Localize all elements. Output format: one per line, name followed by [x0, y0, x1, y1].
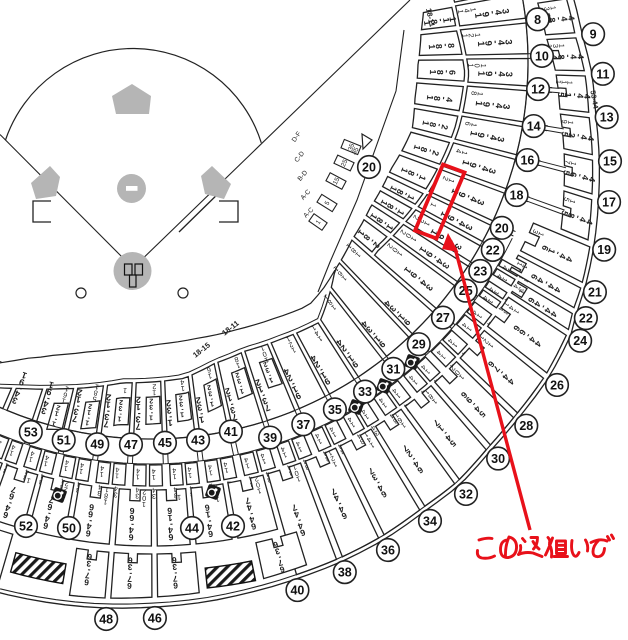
svg-text:49: 49 [90, 438, 104, 452]
svg-text:9: 9 [590, 28, 597, 42]
svg-text:27: 27 [436, 311, 450, 325]
svg-text:47: 47 [124, 438, 138, 452]
svg-text:8: 8 [534, 13, 541, 27]
svg-text:22: 22 [579, 312, 593, 326]
svg-text:21: 21 [588, 286, 602, 300]
svg-text:24: 24 [573, 334, 587, 348]
svg-text:201: 201 [140, 487, 147, 509]
svg-text:23: 23 [473, 265, 487, 279]
svg-text:15: 15 [603, 155, 617, 169]
svg-text:101: 101 [466, 63, 488, 70]
svg-text:10: 10 [535, 49, 549, 63]
svg-text:33: 33 [358, 385, 372, 399]
svg-text:53: 53 [24, 426, 38, 440]
svg-text:44: 44 [185, 522, 199, 536]
svg-text:42: 42 [226, 520, 240, 534]
svg-text:16: 16 [520, 154, 534, 168]
svg-text:32: 32 [459, 488, 473, 502]
svg-text:23-1: 23-1 [147, 397, 153, 421]
svg-text:39: 39 [263, 431, 277, 445]
svg-text:20: 20 [495, 221, 509, 235]
svg-text:13: 13 [600, 111, 614, 125]
svg-text:35: 35 [328, 403, 342, 417]
svg-text:40: 40 [290, 584, 304, 598]
svg-text:20: 20 [362, 161, 376, 175]
svg-text:19: 19 [597, 243, 611, 257]
svg-text:52: 52 [19, 520, 33, 534]
svg-text:43: 43 [191, 434, 205, 448]
svg-text:1: 1 [120, 386, 127, 396]
svg-text:37: 37 [296, 418, 310, 432]
svg-text:22: 22 [486, 243, 500, 257]
svg-text:51: 51 [57, 434, 71, 448]
svg-text:48: 48 [99, 613, 113, 627]
svg-text:36: 36 [381, 544, 395, 558]
svg-text:17: 17 [602, 196, 616, 210]
svg-text:50: 50 [62, 522, 76, 536]
svg-text:18-6: 18-6 [428, 70, 458, 78]
svg-text:26: 26 [550, 379, 564, 393]
svg-text:41: 41 [185, 465, 192, 479]
svg-text:28: 28 [519, 419, 533, 433]
svg-text:41: 41 [150, 467, 156, 480]
svg-text:31: 31 [386, 362, 400, 376]
svg-text:14: 14 [527, 120, 541, 134]
svg-text:38: 38 [338, 566, 352, 580]
svg-text:41: 41 [224, 425, 238, 439]
svg-text:18: 18 [510, 189, 524, 203]
svg-text:21: 21 [150, 382, 156, 397]
svg-text:34: 34 [423, 514, 437, 528]
svg-text:29: 29 [412, 338, 426, 352]
svg-text:41: 41 [134, 467, 140, 480]
svg-text:43: 43 [133, 486, 139, 499]
svg-text:41: 41 [113, 465, 120, 479]
svg-text:12: 12 [531, 83, 545, 97]
svg-text:11: 11 [596, 67, 609, 81]
svg-text:30: 30 [491, 452, 505, 466]
svg-text:46: 46 [148, 612, 162, 626]
svg-text:45: 45 [158, 436, 172, 450]
svg-text:41: 41 [170, 466, 177, 479]
svg-text:41: 41 [178, 378, 185, 394]
svg-text:1: 1 [175, 493, 182, 502]
